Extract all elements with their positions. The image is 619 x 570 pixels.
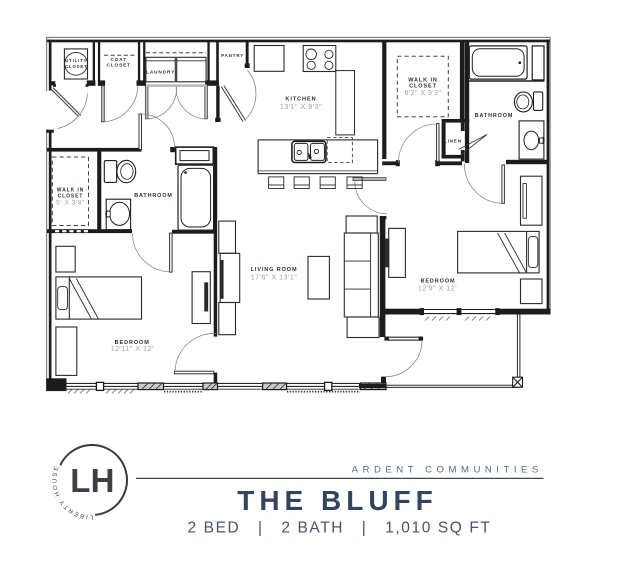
svg-text:BATHROOM: BATHROOM [134,193,173,199]
svg-text:ARDENT COMMUNITIES: ARDENT COMMUNITIES [352,465,543,476]
svg-text:WALK IN: WALK IN [408,77,438,83]
svg-text:BATHROOM: BATHROOM [475,113,514,119]
svg-text:17'6" X 13'1": 17'6" X 13'1" [251,273,298,281]
svg-text:12'9" X 12': 12'9" X 12' [418,284,457,292]
svg-text:13'1" X 9'3": 13'1" X 9'3" [280,103,322,111]
svg-text:2 BED | 2 BATH | 1,010: 2 BED | 2 BATH | 1,010 SQ FT [188,520,492,537]
svg-text:THE BLUFF: THE BLUFF [237,485,438,516]
svg-text:CLOSET: CLOSET [106,63,130,68]
svg-text:LINEN: LINEN [444,138,462,143]
svg-text:12'11" X 12': 12'11" X 12' [111,345,154,353]
svg-text:LH: LH [70,462,114,499]
svg-text:CLOSET: CLOSET [65,64,87,69]
svg-text:UTILITY: UTILITY [65,58,87,63]
svg-text:KITCHEN: KITCHEN [285,97,316,103]
svg-text:5' X 3'8": 5' X 3'8" [56,199,85,206]
svg-text:6'2" X 9'3": 6'2" X 9'3" [405,90,442,97]
svg-text:PANTRY: PANTRY [221,53,244,58]
svg-text:COAT: COAT [110,57,127,62]
svg-text:CLOSET: CLOSET [409,84,437,90]
svg-text:LIVING ROOM: LIVING ROOM [251,267,298,273]
svg-text:LAUNDRY: LAUNDRY [146,69,175,74]
